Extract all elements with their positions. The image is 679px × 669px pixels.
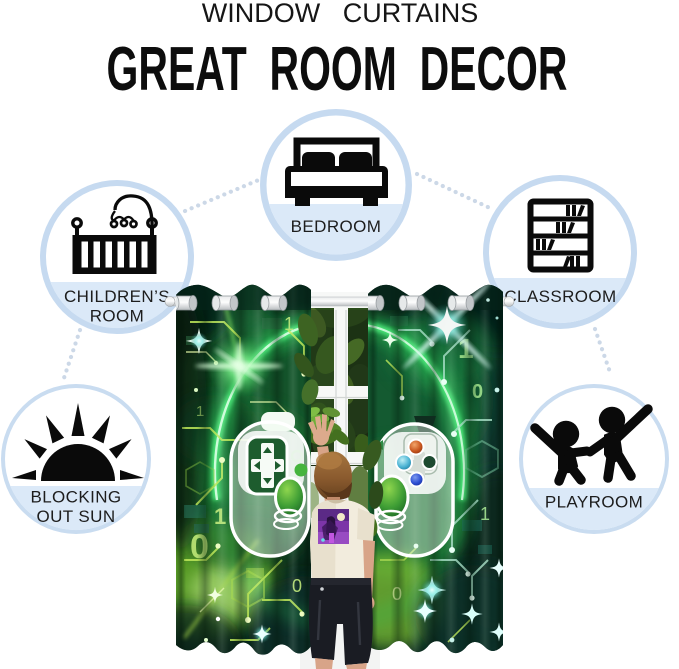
svg-text:BEDROOM: BEDROOM <box>291 217 382 236</box>
svg-text:BLOCKING: BLOCKING <box>30 488 121 507</box>
svg-text:WINDOW CURTAINS: WINDOW CURTAINS <box>202 0 479 28</box>
svg-text:GREAT ROOM DECOR: GREAT ROOM DECOR <box>107 34 568 104</box>
svg-text:ROOM: ROOM <box>90 307 144 326</box>
svg-text:CLASSROOM: CLASSROOM <box>504 287 616 306</box>
svg-text:PLAYROOM: PLAYROOM <box>545 493 643 512</box>
svg-text:OUT SUN: OUT SUN <box>37 507 116 526</box>
svg-text:CHILDREN’S: CHILDREN’S <box>64 287 170 306</box>
